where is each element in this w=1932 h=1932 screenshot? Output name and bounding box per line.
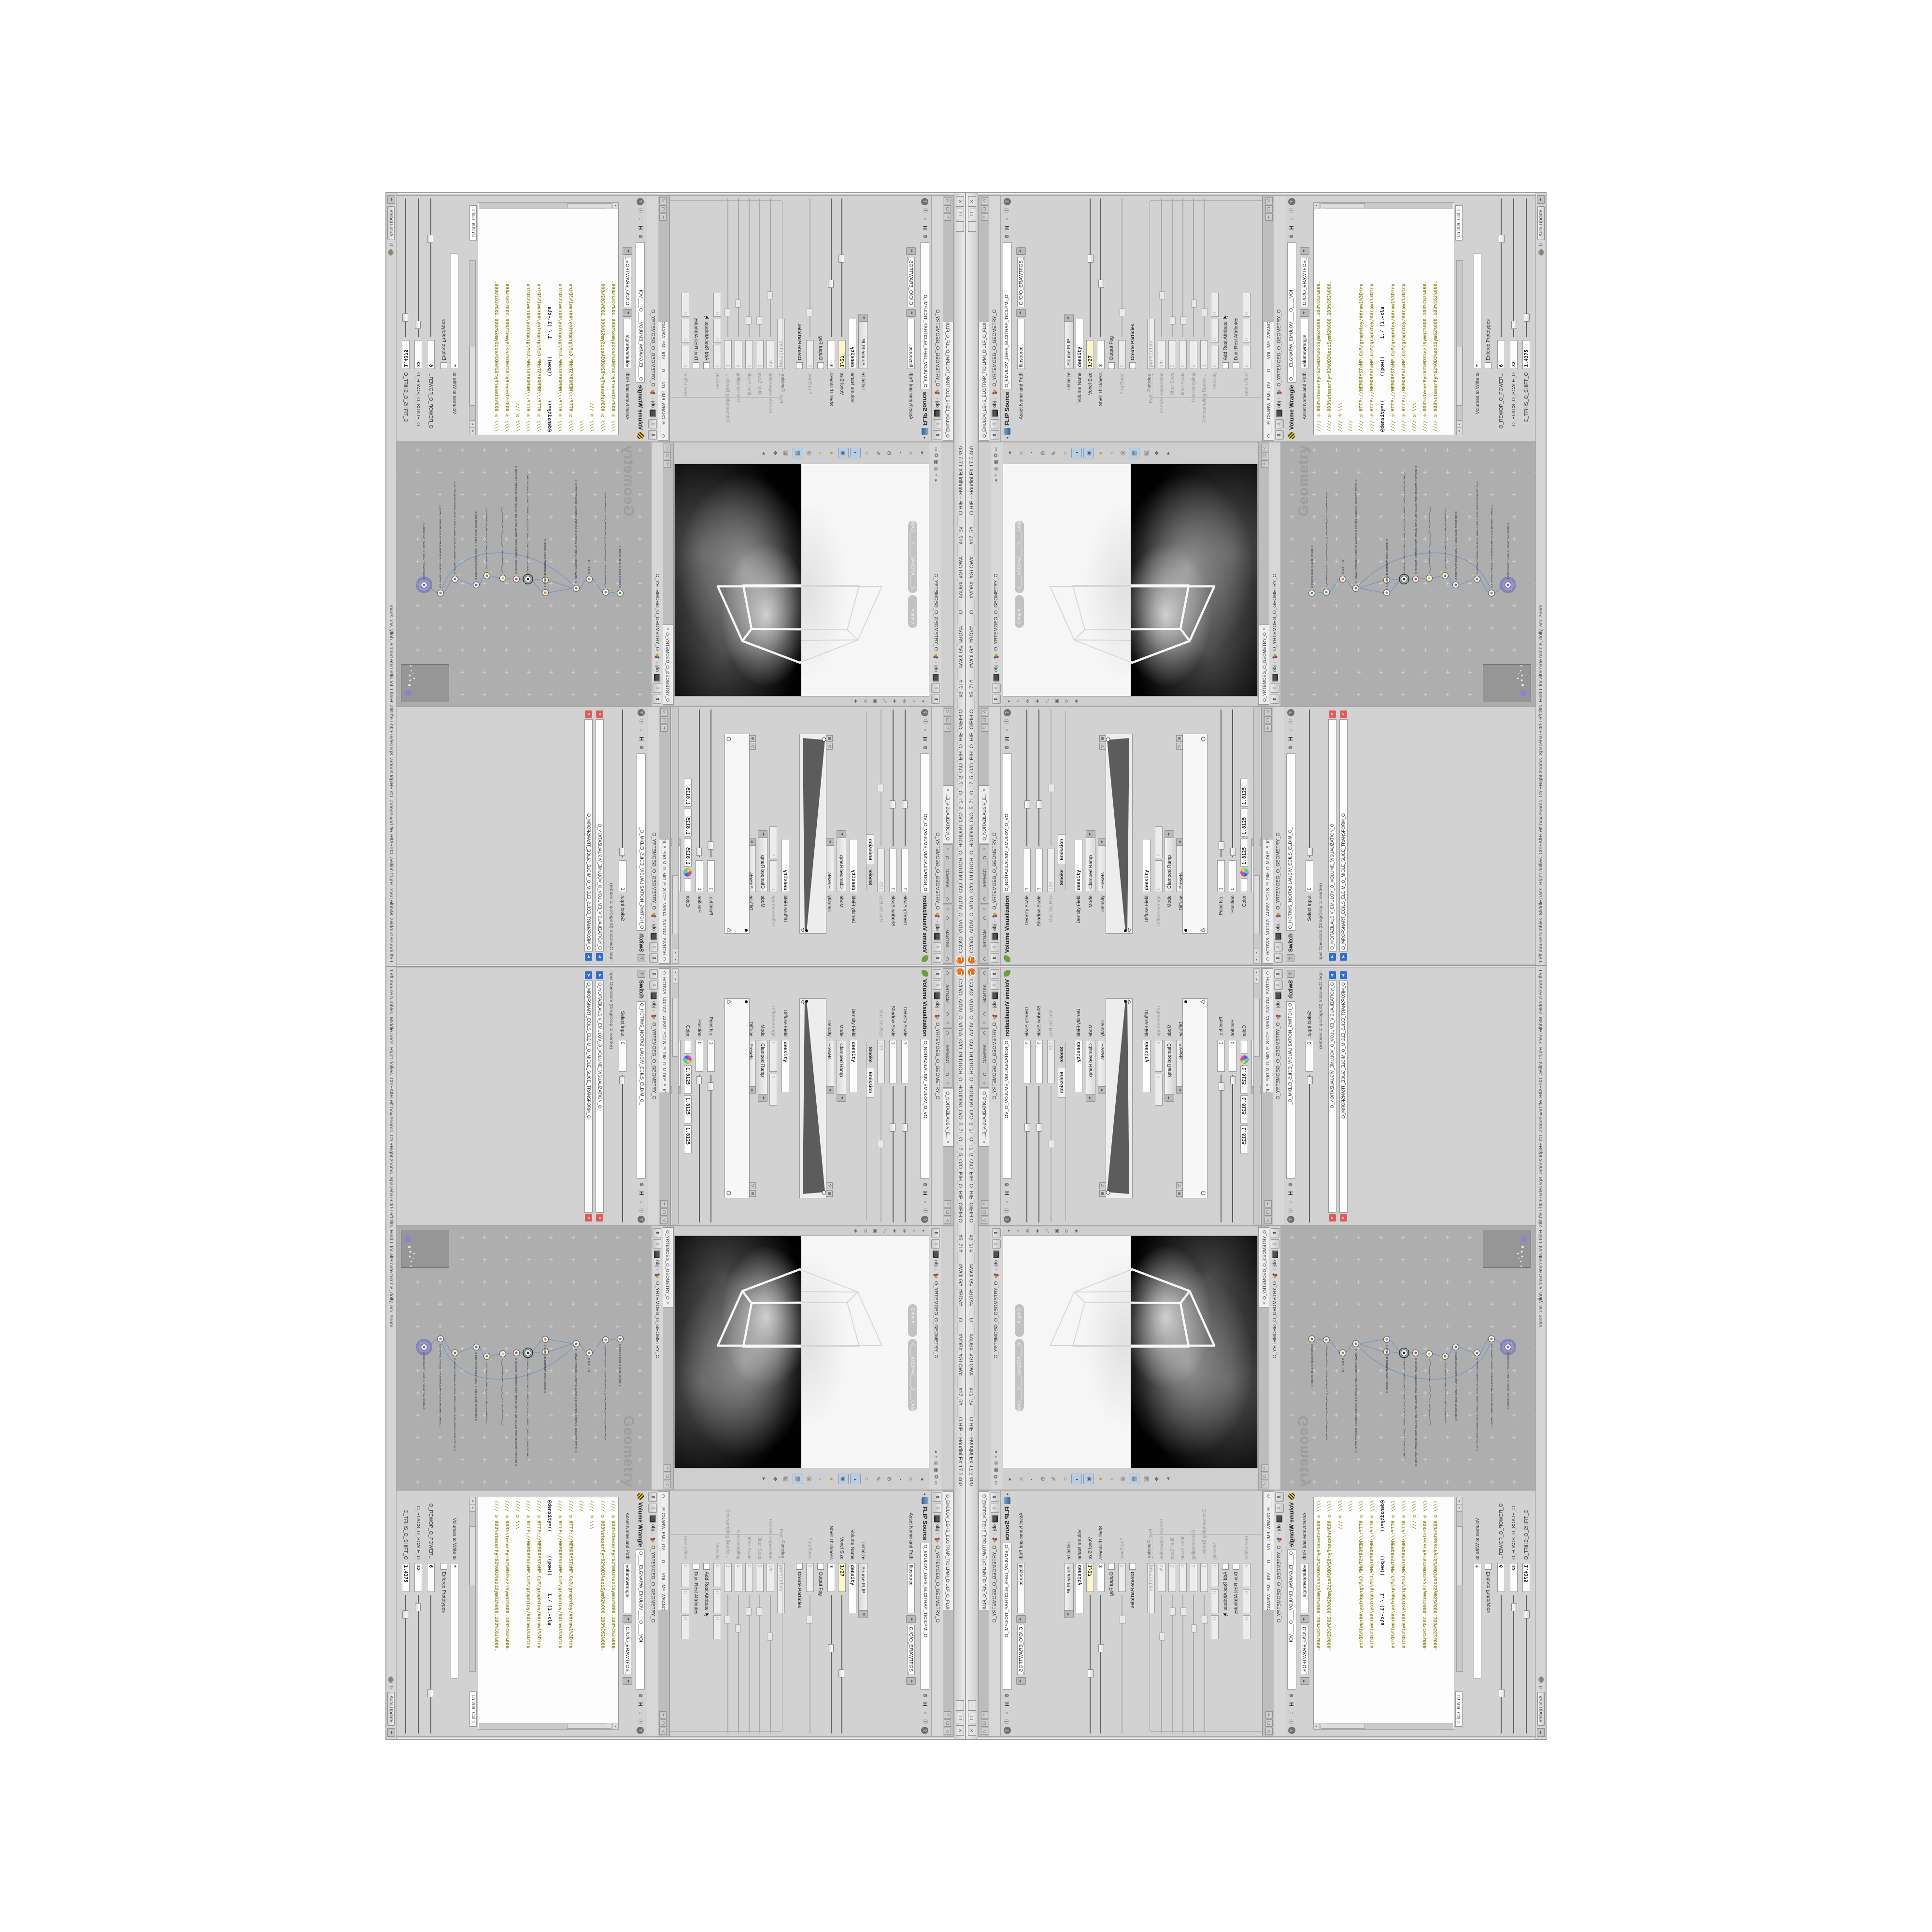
viewport-tool-icon[interactable]: ▣ — [871, 697, 879, 705]
color-swatch[interactable] — [1241, 1040, 1248, 1053]
display-option-icon[interactable]: ○ — [1060, 448, 1070, 458]
param-field[interactable]: 0 — [1118, 340, 1126, 369]
param-field[interactable]: flipsource — [1017, 319, 1025, 369]
scrollbar-thumb[interactable] — [672, 875, 678, 934]
viewport-left-toolbar[interactable]: ▸↖⟳✚⤡▣⚙◈ — [674, 696, 929, 706]
param-field[interactable]: * — [1474, 253, 1481, 369]
param-field[interactable]: 1.8125 — [1240, 1065, 1248, 1094]
viewport-path-icon[interactable]: ❂ — [994, 453, 999, 457]
path-context[interactable]: obj — [654, 1260, 660, 1266]
input-operator-row[interactable]: ➤ O_NOITAZILAUSIV_EMULOV_O_VOLUME_VISUAL… — [595, 971, 604, 1222]
close-button[interactable]: ✕ — [956, 1725, 965, 1736]
display-option-icon[interactable]: ◉ — [1083, 1474, 1094, 1484]
ramp-add-button[interactable]: ⊞ — [1099, 735, 1106, 742]
param-slider[interactable] — [619, 709, 626, 858]
param-slider[interactable] — [877, 1085, 885, 1223]
display-option-icon[interactable]: ◉ — [1083, 448, 1094, 458]
pane-tab[interactable]: O_YRTEMOEG_O_GEOMETRY_O✕ — [663, 625, 673, 705]
ramp-add-button[interactable]: ⊞ — [749, 735, 756, 742]
param-field[interactable]: 1 — [1155, 1074, 1163, 1106]
param-field[interactable]: 1.4375 — [402, 340, 410, 369]
tab-close-icon[interactable]: ✕ — [666, 1302, 670, 1305]
param-field[interactable]: density — [849, 319, 856, 369]
viewport-tool-icon[interactable]: ↖ — [1014, 697, 1023, 705]
display-option-icon[interactable]: ○ — [862, 1474, 872, 1484]
display-option-icon[interactable]: ▤ — [793, 448, 803, 458]
param-slider[interactable] — [901, 1085, 909, 1223]
display-option-icon[interactable]: ◖ — [816, 448, 825, 458]
refresh-icon[interactable]: ↻ — [388, 1685, 395, 1690]
param-slider[interactable] — [827, 198, 835, 338]
viewport-path-icon[interactable]: ♀ — [994, 1455, 999, 1459]
viewport-tool-icon[interactable]: ▸ — [919, 1227, 927, 1235]
viewport-tool-icon[interactable]: ▣ — [871, 1227, 879, 1235]
display-option-icon[interactable]: ✎ — [1049, 448, 1059, 458]
auto-update-stepper[interactable]: ◂▸ — [387, 195, 395, 204]
auto-update-selector[interactable]: Auto Update — [388, 1692, 395, 1726]
nav-up-button[interactable]: ⬆ — [992, 1228, 1001, 1237]
field-stepper[interactable]: ◂▸ — [906, 247, 916, 255]
pane-collapse-icon[interactable]: ◁ — [664, 1481, 671, 1488]
param-field[interactable]: 1 — [1035, 1040, 1043, 1083]
maximize-button[interactable]: ❐ — [968, 1713, 976, 1723]
tab-smoke[interactable]: Smoke — [867, 1042, 874, 1067]
param-checkbox[interactable] — [796, 362, 803, 369]
viewport-left-toolbar[interactable]: ▸↖⟳✚⤡▣⚙◈ — [1003, 696, 1258, 706]
viewport-path-icon[interactable]: ▭ — [933, 1481, 938, 1486]
param-field[interactable]: 6 — [427, 1563, 435, 1592]
param-slider[interactable] — [1097, 198, 1105, 338]
path-node-name[interactable]: O_YRTEMOEG_O_GEOMETRY_O — [933, 574, 938, 651]
viewport-path-bar[interactable]: ⬆⬇obj›O_YRTEMOEG_O_GEOMETRY_O◂♀◎▦❂▭ — [930, 442, 941, 706]
param-field[interactable]: 1.4375 — [402, 1563, 410, 1592]
viewport-path-icon[interactable]: ▦ — [994, 1468, 999, 1472]
close-button[interactable]: ✕ — [968, 196, 976, 207]
scrollbar-thumb[interactable] — [1254, 875, 1260, 934]
ramp-marker-button[interactable]: ▽ — [826, 743, 833, 750]
param-slider[interactable] — [1023, 1085, 1031, 1223]
viewport-path-icon[interactable]: ◎ — [933, 1461, 938, 1465]
viewport-path-icon[interactable]: ❂ — [933, 1475, 938, 1478]
display-option-icon[interactable]: ◖ — [816, 1474, 825, 1484]
param-slider[interactable] — [889, 709, 897, 847]
param-field[interactable]: 0 — [1229, 860, 1236, 892]
param-field[interactable]: 1 — [1155, 826, 1163, 858]
display-option-icon[interactable]: ☼ — [1016, 448, 1025, 458]
tab-smoke[interactable]: Smoke — [1058, 1042, 1065, 1067]
viewport-tool-icon[interactable]: ◈ — [1072, 697, 1080, 705]
viewport-tool-icon[interactable]: ⤡ — [881, 1227, 889, 1235]
input-operator-row[interactable]: ➤ O_MROFSNART_ECILS_ELDIM_O_MIDLE_SLICE_… — [584, 971, 593, 1222]
display-option-icon[interactable]: ☼ — [907, 1474, 916, 1484]
nav-down-button[interactable]: ⬇ — [1271, 683, 1279, 693]
density-ramp-widget[interactable]: ▽⊞ — [1106, 734, 1133, 934]
nav-up-button[interactable]: ⬆ — [1271, 1228, 1279, 1237]
minimize-button[interactable]: ─ — [968, 1700, 976, 1711]
viewport-tool-icon[interactable]: ▣ — [1053, 697, 1061, 705]
path-node-name[interactable]: O_YRTEMOEG_O_GEOMETRY_O — [933, 1281, 938, 1359]
viewport-tool-icon[interactable]: ⚙ — [1063, 697, 1071, 705]
display-option-icon[interactable]: ✎ — [873, 1474, 883, 1484]
viewport-tool-icon[interactable]: ▣ — [1053, 1227, 1061, 1235]
input-operator-row[interactable]: ➤ O_MROFSNART_ECILS_ELDIM_O_MIDLE_SLICE_… — [1339, 710, 1348, 961]
display-option-icon[interactable]: ◑ — [850, 448, 861, 458]
param-field[interactable]: 1.8125 — [684, 1095, 692, 1123]
param-field[interactable]: density — [781, 839, 789, 892]
pane-maximize-icon[interactable]: ▢ — [1261, 452, 1268, 459]
display-option-icon[interactable]: ◎ — [805, 448, 814, 458]
param-field[interactable]: 1/27 — [1086, 340, 1094, 369]
path-node-name[interactable]: O_YRTEMOEG_O_GEOMETRY_O — [1272, 1281, 1278, 1359]
param-field[interactable]: * — [451, 1563, 458, 1679]
display-option-icon[interactable]: ▸ — [1163, 1474, 1173, 1484]
param-field[interactable]: density — [1075, 839, 1082, 892]
param-field[interactable]: 0 — [806, 1563, 814, 1592]
nav-down-button[interactable]: ⬇ — [932, 683, 940, 693]
display-option-icon[interactable]: ✎ — [1049, 1474, 1059, 1484]
param-field[interactable]: 32 — [414, 1563, 422, 1592]
param-slider[interactable] — [838, 1594, 846, 1734]
tab-close-icon[interactable]: ✕ — [1262, 627, 1266, 631]
display-option-icon[interactable]: ◖ — [1107, 1474, 1116, 1484]
view-mode-pill[interactable]: Ortho ▾ — [1015, 1304, 1024, 1337]
viewport-tool-icon[interactable]: ◈ — [852, 1227, 860, 1235]
param-slider[interactable] — [1229, 709, 1236, 858]
tab-emission[interactable]: Emission — [867, 1067, 874, 1098]
param-field[interactable]: 1 — [1217, 1040, 1225, 1072]
param-field[interactable]: flipsource — [907, 319, 915, 369]
input-operator-row[interactable]: ➤ O_NOITAZILAUSIV_EMULOV_O_VOLUME_VISUAL… — [1328, 971, 1337, 1222]
viewport-tool-icon[interactable]: ⟳ — [900, 697, 908, 705]
param-field[interactable]: 0 — [806, 340, 814, 369]
viewport-path-bar[interactable]: ⬆⬇obj›O_YRTEMOEG_O_GEOMETRY_O◂♀◎▦❂▭ — [930, 1226, 941, 1490]
param-field[interactable]: 1 — [901, 1040, 909, 1083]
param-slider[interactable] — [414, 198, 422, 338]
param-field[interactable]: density — [849, 1563, 856, 1613]
camera-pill[interactable]: O____AREMAC____O____CAMERA____O — [1015, 1339, 1024, 1411]
param-field[interactable]: 1 — [1035, 849, 1043, 892]
viewport-tool-icon[interactable]: ✚ — [890, 1227, 898, 1235]
maximize-button[interactable]: ❐ — [956, 1713, 965, 1723]
remove-input-button[interactable]: ✕ — [1340, 1214, 1347, 1222]
density-ramp-widget[interactable]: ▽⊞ — [799, 998, 826, 1198]
input-operator-path[interactable]: O_MROFSNART_ECILS_ELDIM_O_MIDLE_SLICE_TR… — [584, 980, 593, 1213]
auto-update-selector[interactable]: Auto Update — [1537, 206, 1545, 240]
tab-emission[interactable]: Emission — [1058, 1067, 1065, 1098]
param-field[interactable]: 0 — [769, 1040, 777, 1072]
nav-down-button[interactable]: ⬇ — [992, 683, 1001, 693]
path-context[interactable]: obj — [1272, 666, 1278, 672]
param-field[interactable]: 6 — [1497, 340, 1505, 369]
scroll-left-button[interactable]: ◂ — [673, 969, 678, 976]
ramp-add-button[interactable]: ⊞ — [826, 735, 833, 742]
viewport-display-toolbar[interactable]: ◂☼◔⚙✎○◑◉●◖◎▤▧❖▸ — [674, 442, 929, 464]
field-stepper[interactable]: ◂▸ — [906, 1677, 916, 1685]
param-field[interactable]: 0 — [1229, 1040, 1236, 1072]
param-field[interactable]: C:/O/O_ERAWTFOS_... — [907, 1625, 915, 1675]
density-ramp-widget[interactable]: ▽⊞ — [799, 734, 826, 934]
param-field[interactable]: 0 — [1306, 860, 1313, 892]
color-picker-icon[interactable] — [1240, 868, 1249, 877]
param-slider[interactable] — [1118, 198, 1126, 338]
param-slider[interactable] — [1510, 1594, 1518, 1734]
param-field[interactable]: 128 — [1047, 849, 1055, 892]
viewport-tool-icon[interactable]: ✚ — [890, 697, 898, 705]
ramp-add-button[interactable]: ⊞ — [826, 1190, 833, 1197]
input-operator-path[interactable]: O_MROFSNART_ECILS_ELDIM_O_MIDLE_SLICE_TR… — [1339, 980, 1348, 1213]
viewport-path-icon[interactable]: ◎ — [994, 467, 999, 471]
display-option-icon[interactable]: ▧ — [781, 448, 791, 458]
param-slider[interactable] — [696, 1074, 703, 1223]
viewport-path-icon[interactable]: ◎ — [994, 1461, 999, 1465]
ramp-add-button[interactable]: ⊞ — [1176, 1190, 1183, 1197]
window-titlebar[interactable]: C:/O/O_AIDIV_O_VIDIA_O/O_INIDUOH_O_HOUDI… — [966, 193, 978, 966]
viewport-tool-icon[interactable]: ⤡ — [1043, 1227, 1051, 1235]
minimize-button[interactable]: ─ — [956, 1700, 965, 1711]
display-option-icon[interactable]: ◉ — [838, 1474, 849, 1484]
param-checkbox[interactable] — [1485, 362, 1492, 369]
reorder-arrow-icon[interactable]: ➤ — [585, 953, 592, 961]
display-option-icon[interactable]: ◖ — [1107, 448, 1116, 458]
network-minimap[interactable] — [401, 1230, 449, 1268]
view-mode-pill[interactable]: Ortho ▾ — [908, 1304, 917, 1337]
display-option-icon[interactable]: ☼ — [1016, 1474, 1025, 1484]
diffuse-ramp-widget[interactable]: ▽⊞ — [724, 998, 750, 1198]
param-slider[interactable] — [1023, 709, 1031, 847]
param-field[interactable]: 6 — [427, 340, 435, 369]
remove-input-button[interactable]: ✕ — [596, 1214, 603, 1222]
pane-maximize-icon[interactable]: ▢ — [1261, 1473, 1268, 1480]
param-checkbox[interactable] — [1108, 362, 1115, 369]
smoke-emission-tabs[interactable]: Smoke Emission — [866, 1042, 877, 1221]
remove-input-button[interactable]: ✕ — [585, 710, 592, 718]
field-stepper[interactable]: ◂▸ — [1016, 309, 1026, 317]
viewport-path-bar[interactable]: ⬆⬇obj›O_YRTEMOEG_O_GEOMETRY_O◂♀◎▦❂▭ — [991, 442, 1002, 706]
viewport-path-icon[interactable]: ❂ — [933, 453, 938, 457]
display-option-icon[interactable]: ◂ — [918, 448, 927, 458]
ramp-add-button[interactable]: ⊞ — [1099, 1190, 1106, 1197]
refresh-icon[interactable]: ↻ — [388, 242, 395, 247]
param-field[interactable]: 3 — [827, 1563, 835, 1592]
param-field[interactable]: 3 — [1097, 340, 1105, 369]
diffuse-ramp-widget[interactable]: ▽⊞ — [1182, 734, 1207, 934]
param-slider[interactable] — [1086, 1594, 1094, 1734]
param-field[interactable]: 1 — [1023, 1040, 1031, 1083]
network-path-bar[interactable]: ⬆⬇obj›O_YRTEMOEG_O_GEOMETRY_O — [651, 1226, 663, 1490]
display-option-icon[interactable]: ◔ — [1027, 1474, 1037, 1484]
display-option-icon[interactable]: ● — [1095, 448, 1105, 458]
param-slider[interactable] — [1118, 1594, 1126, 1734]
display-option-icon[interactable]: ◂ — [1005, 1474, 1014, 1484]
camera-pill[interactable]: O____AREMAC____O____CAMERA____O — [1015, 521, 1024, 593]
horizontal-scrollbar[interactable]: ◂ ▸ — [672, 968, 679, 1224]
pane-tab[interactable]: O_YRTEMOEG_O_GEOMETRY_O✕ — [1259, 625, 1269, 705]
smoke-emission-tabs[interactable]: Smoke Emission — [1055, 1042, 1066, 1221]
display-option-icon[interactable]: ▧ — [1141, 448, 1151, 458]
param-dropdown[interactable]: Clamped Ramp◂▸ — [1086, 1040, 1095, 1102]
param-slider[interactable] — [838, 198, 846, 338]
reorder-arrow-icon[interactable]: ➤ — [1329, 953, 1336, 961]
param-field[interactable]: density — [850, 1040, 857, 1093]
network-path-bar[interactable]: ⬆⬇obj›O_YRTEMOEG_O_GEOMETRY_O — [1269, 442, 1281, 706]
refresh-icon[interactable]: ↻ — [1538, 242, 1544, 247]
reorder-arrow-icon[interactable]: ➤ — [585, 971, 592, 979]
param-field[interactable]: 6 — [1497, 1563, 1505, 1592]
input-operator-path[interactable]: O_NOITAZILAUSIV_EMULOV_O_VOLUME_VISUALIZ… — [1328, 980, 1336, 1213]
param-field[interactable]: 1 — [1217, 860, 1225, 892]
path-context[interactable]: obj — [654, 666, 660, 672]
auto-update-stepper[interactable]: ◂▸ — [1537, 1728, 1545, 1737]
reorder-arrow-icon[interactable]: ➤ — [596, 953, 603, 961]
param-dropdown[interactable]: Source FLIP◂▸ — [1064, 1563, 1074, 1618]
pane-maximize-icon[interactable]: ▢ — [664, 1473, 671, 1480]
param-slider[interactable] — [889, 1085, 897, 1223]
param-checkbox[interactable] — [1485, 1563, 1492, 1570]
pane-link-icon[interactable]: ✛ — [1261, 1464, 1268, 1472]
display-option-icon[interactable]: ◎ — [805, 1474, 814, 1484]
tab-close-icon[interactable]: ✕ — [666, 627, 670, 631]
param-field[interactable]: 1.8125 — [1240, 1125, 1248, 1153]
param-field[interactable]: density — [1075, 1040, 1082, 1093]
field-stepper[interactable]: ◂▸ — [1016, 247, 1026, 255]
viewport-path-icon[interactable]: ▦ — [994, 460, 999, 464]
input-operator-path[interactable]: O_MROFSNART_ECILS_ELDIM_O_MIDLE_SLICE_TR… — [584, 719, 593, 952]
viewport-render-area[interactable]: Ortho ▾ O____AREMAC____O____CAMERA____O — [1003, 1236, 1258, 1468]
param-slider[interactable] — [1035, 709, 1043, 847]
network-minimap[interactable] — [401, 664, 449, 702]
param-slider[interactable] — [806, 198, 814, 338]
nav-down-button[interactable]: ⬇ — [653, 683, 662, 693]
color-swatch[interactable] — [684, 1040, 692, 1053]
remove-input-button[interactable]: ✕ — [1329, 710, 1336, 718]
param-field[interactable]: C:/O/O_ERAWTFOS_... — [907, 257, 915, 307]
param-field[interactable]: 1.8125 — [1240, 809, 1248, 837]
display-option-icon[interactable]: ◉ — [838, 448, 849, 458]
viewport-path-icon[interactable]: ◂ — [994, 480, 999, 482]
viewport-tool-icon[interactable]: ↖ — [909, 697, 918, 705]
param-slider[interactable] — [427, 1594, 435, 1734]
horizontal-scrollbar[interactable]: ◂ ▸ — [1253, 968, 1260, 1224]
path-node-name[interactable]: O_YRTEMOEG_O_GEOMETRY_O — [1272, 574, 1278, 651]
window-titlebar[interactable]: C:/O/O_AIDIV_O_VIDIA_O/O_INIDUOH_O_HOUDI… — [966, 966, 978, 1739]
param-field[interactable]: 128 — [877, 849, 885, 892]
param-field[interactable]: 32 — [1510, 340, 1518, 369]
tab-smoke[interactable]: Smoke — [1058, 865, 1065, 890]
param-slider[interactable] — [877, 709, 885, 847]
param-field[interactable]: density — [1076, 1563, 1083, 1613]
close-button[interactable]: ✕ — [956, 196, 965, 207]
pane-collapse-icon[interactable]: ◁ — [664, 444, 671, 451]
minimize-button[interactable]: ─ — [956, 221, 965, 232]
param-field[interactable]: 1.8125 — [1240, 838, 1248, 867]
param-checkbox[interactable] — [817, 362, 824, 369]
input-operator-row[interactable]: ➤ O_NOITAZILAUSIV_EMULOV_O_VOLUME_VISUAL… — [595, 710, 604, 961]
display-option-icon[interactable]: ✎ — [873, 448, 883, 458]
pane-maximize-icon[interactable]: ▢ — [664, 452, 671, 459]
close-button[interactable]: ✕ — [968, 1725, 976, 1736]
param-field[interactable]: density — [1076, 319, 1083, 369]
param-field[interactable]: 1 — [707, 1040, 715, 1072]
display-option-icon[interactable]: ◎ — [1118, 1474, 1127, 1484]
viewport-tool-icon[interactable]: ▸ — [1005, 697, 1013, 705]
color-picker-icon[interactable] — [684, 868, 692, 877]
viewport-tool-icon[interactable]: ↖ — [909, 1227, 918, 1235]
scrollbar-thumb[interactable] — [1254, 998, 1260, 1057]
refresh-icon[interactable]: ↻ — [1538, 1685, 1544, 1690]
ramp-marker-button[interactable]: ▽ — [826, 1182, 833, 1189]
viewport-display-toolbar[interactable]: ◂☼◔⚙✎○◑◉●◖◎▤▧❖▸ — [674, 1468, 929, 1490]
param-field[interactable]: flipsource — [1017, 1563, 1025, 1613]
param-checkbox[interactable] — [817, 1563, 824, 1570]
input-operator-path[interactable]: O_NOITAZILAUSIV_EMULOV_O_VOLUME_VISUALIZ… — [596, 719, 604, 952]
param-dropdown[interactable]: Clamped Ramp◂▸ — [1165, 830, 1174, 892]
field-stepper[interactable]: ◂▸ — [906, 1615, 916, 1623]
nav-up-button[interactable]: ⬆ — [653, 695, 662, 704]
ramp-marker-button[interactable]: ▽ — [1099, 743, 1106, 750]
viewport-tool-icon[interactable]: ▸ — [1005, 1227, 1013, 1235]
param-dropdown[interactable]: Clamped Ramp◂▸ — [837, 1040, 846, 1102]
horizontal-scrollbar[interactable]: ◂ ▸ — [1253, 708, 1260, 964]
param-field[interactable]: 0 — [1155, 1040, 1163, 1072]
param-field[interactable]: 1/27 — [1086, 1563, 1094, 1592]
auto-update-stepper[interactable]: ◂▸ — [387, 1728, 395, 1737]
scroll-right-button[interactable]: ▸ — [673, 976, 678, 983]
input-operator-row[interactable]: ➤ O_NOITAZILAUSIV_EMULOV_O_VOLUME_VISUAL… — [1328, 710, 1337, 961]
network-canvas[interactable]: Geometry O_EREHPS_EBUC_O_CUBE_SPHERE_OO_… — [397, 442, 651, 706]
param-field[interactable]: 0 — [769, 860, 777, 892]
param-field[interactable]: 0 — [1155, 860, 1163, 892]
param-slider[interactable] — [1217, 1074, 1225, 1223]
param-field[interactable]: 3 — [1097, 1563, 1105, 1592]
path-context[interactable]: obj — [994, 1260, 999, 1266]
viewport-path-icon[interactable]: ♀ — [933, 473, 938, 477]
pane-collapse-icon[interactable]: ◁ — [1261, 1481, 1268, 1488]
scroll-right-button[interactable]: ▸ — [673, 949, 678, 956]
pane-link-icon[interactable]: ✛ — [664, 1464, 671, 1472]
param-slider[interactable] — [1217, 709, 1225, 858]
param-slider[interactable] — [1306, 709, 1313, 858]
display-option-icon[interactable]: ⚙ — [1038, 1474, 1048, 1484]
display-option-icon[interactable]: ● — [827, 1474, 837, 1484]
network-minimap[interactable] — [1483, 664, 1531, 702]
display-option-icon[interactable]: ◑ — [1071, 1474, 1082, 1484]
param-field[interactable]: 32 — [414, 340, 422, 369]
path-context[interactable]: obj — [994, 666, 999, 672]
display-option-icon[interactable]: ▤ — [1129, 1474, 1139, 1484]
scroll-right-button[interactable]: ▸ — [1254, 976, 1259, 983]
viewport-tool-icon[interactable]: ✚ — [1034, 1227, 1042, 1235]
viewport-path-icon[interactable]: ▭ — [933, 446, 938, 451]
network-path-bar[interactable]: ⬆⬇obj›O_YRTEMOEG_O_GEOMETRY_O — [1269, 1226, 1281, 1490]
param-field[interactable]: 1 — [707, 860, 715, 892]
reorder-arrow-icon[interactable]: ➤ — [1329, 971, 1336, 979]
display-option-icon[interactable]: ◑ — [850, 1474, 861, 1484]
param-slider[interactable] — [707, 1074, 715, 1223]
tab-smoke[interactable]: Smoke — [867, 865, 874, 890]
param-field[interactable]: density — [1143, 839, 1151, 892]
input-operator-row[interactable]: ➤ O_MROFSNART_ECILS_ELDIM_O_MIDLE_SLICE_… — [584, 710, 593, 961]
tab-emission[interactable]: Emission — [1058, 834, 1065, 865]
param-field[interactable]: 1 — [1023, 849, 1031, 892]
horizontal-scrollbar[interactable]: ◂ ▸ — [672, 708, 679, 964]
param-slider[interactable] — [1306, 1074, 1313, 1223]
param-dropdown[interactable]: Source FLIP◂▸ — [1064, 314, 1074, 369]
param-dropdown[interactable]: Clamped Ramp◂▸ — [1165, 1040, 1174, 1102]
ramp-add-button[interactable]: ⊞ — [749, 1190, 756, 1197]
network-minimap[interactable] — [1483, 1230, 1531, 1268]
param-slider[interactable] — [806, 1594, 814, 1734]
param-slider[interactable] — [1097, 1594, 1105, 1734]
